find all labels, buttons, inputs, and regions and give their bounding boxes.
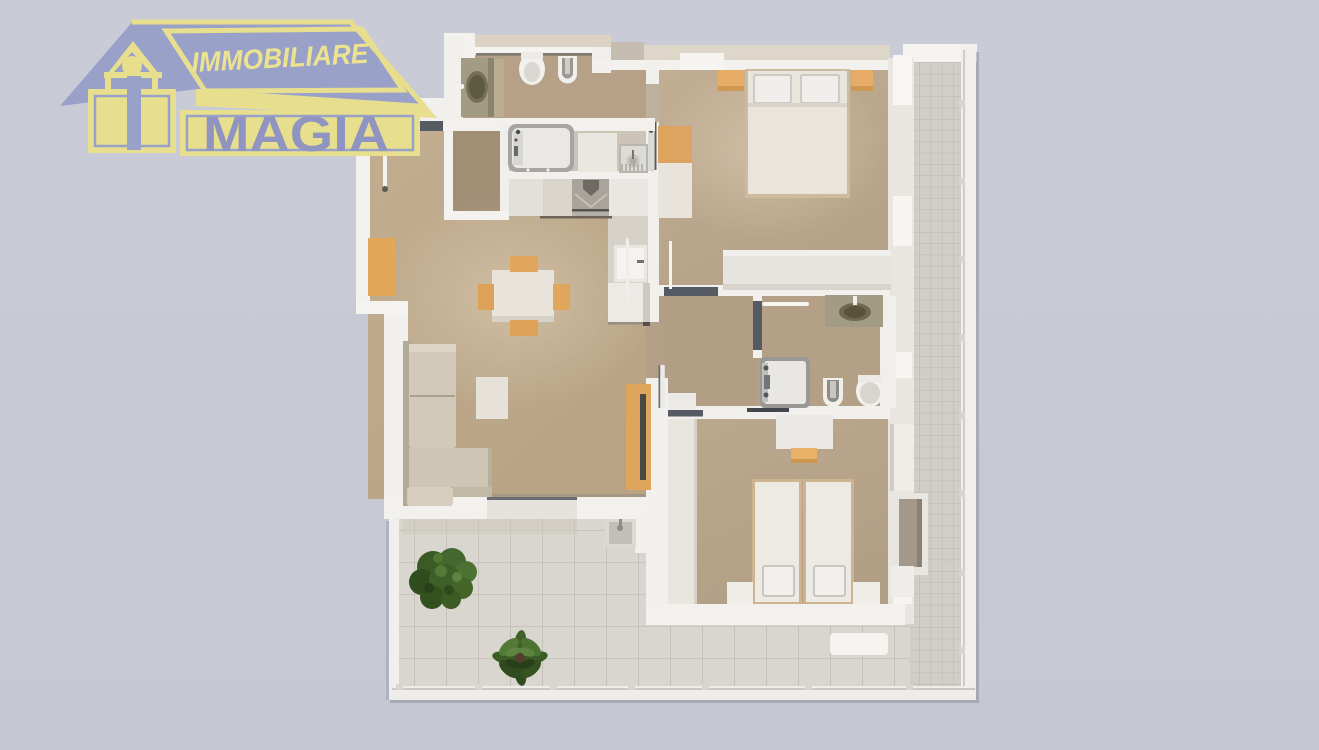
svg-text:MAGIA: MAGIA	[203, 106, 389, 162]
